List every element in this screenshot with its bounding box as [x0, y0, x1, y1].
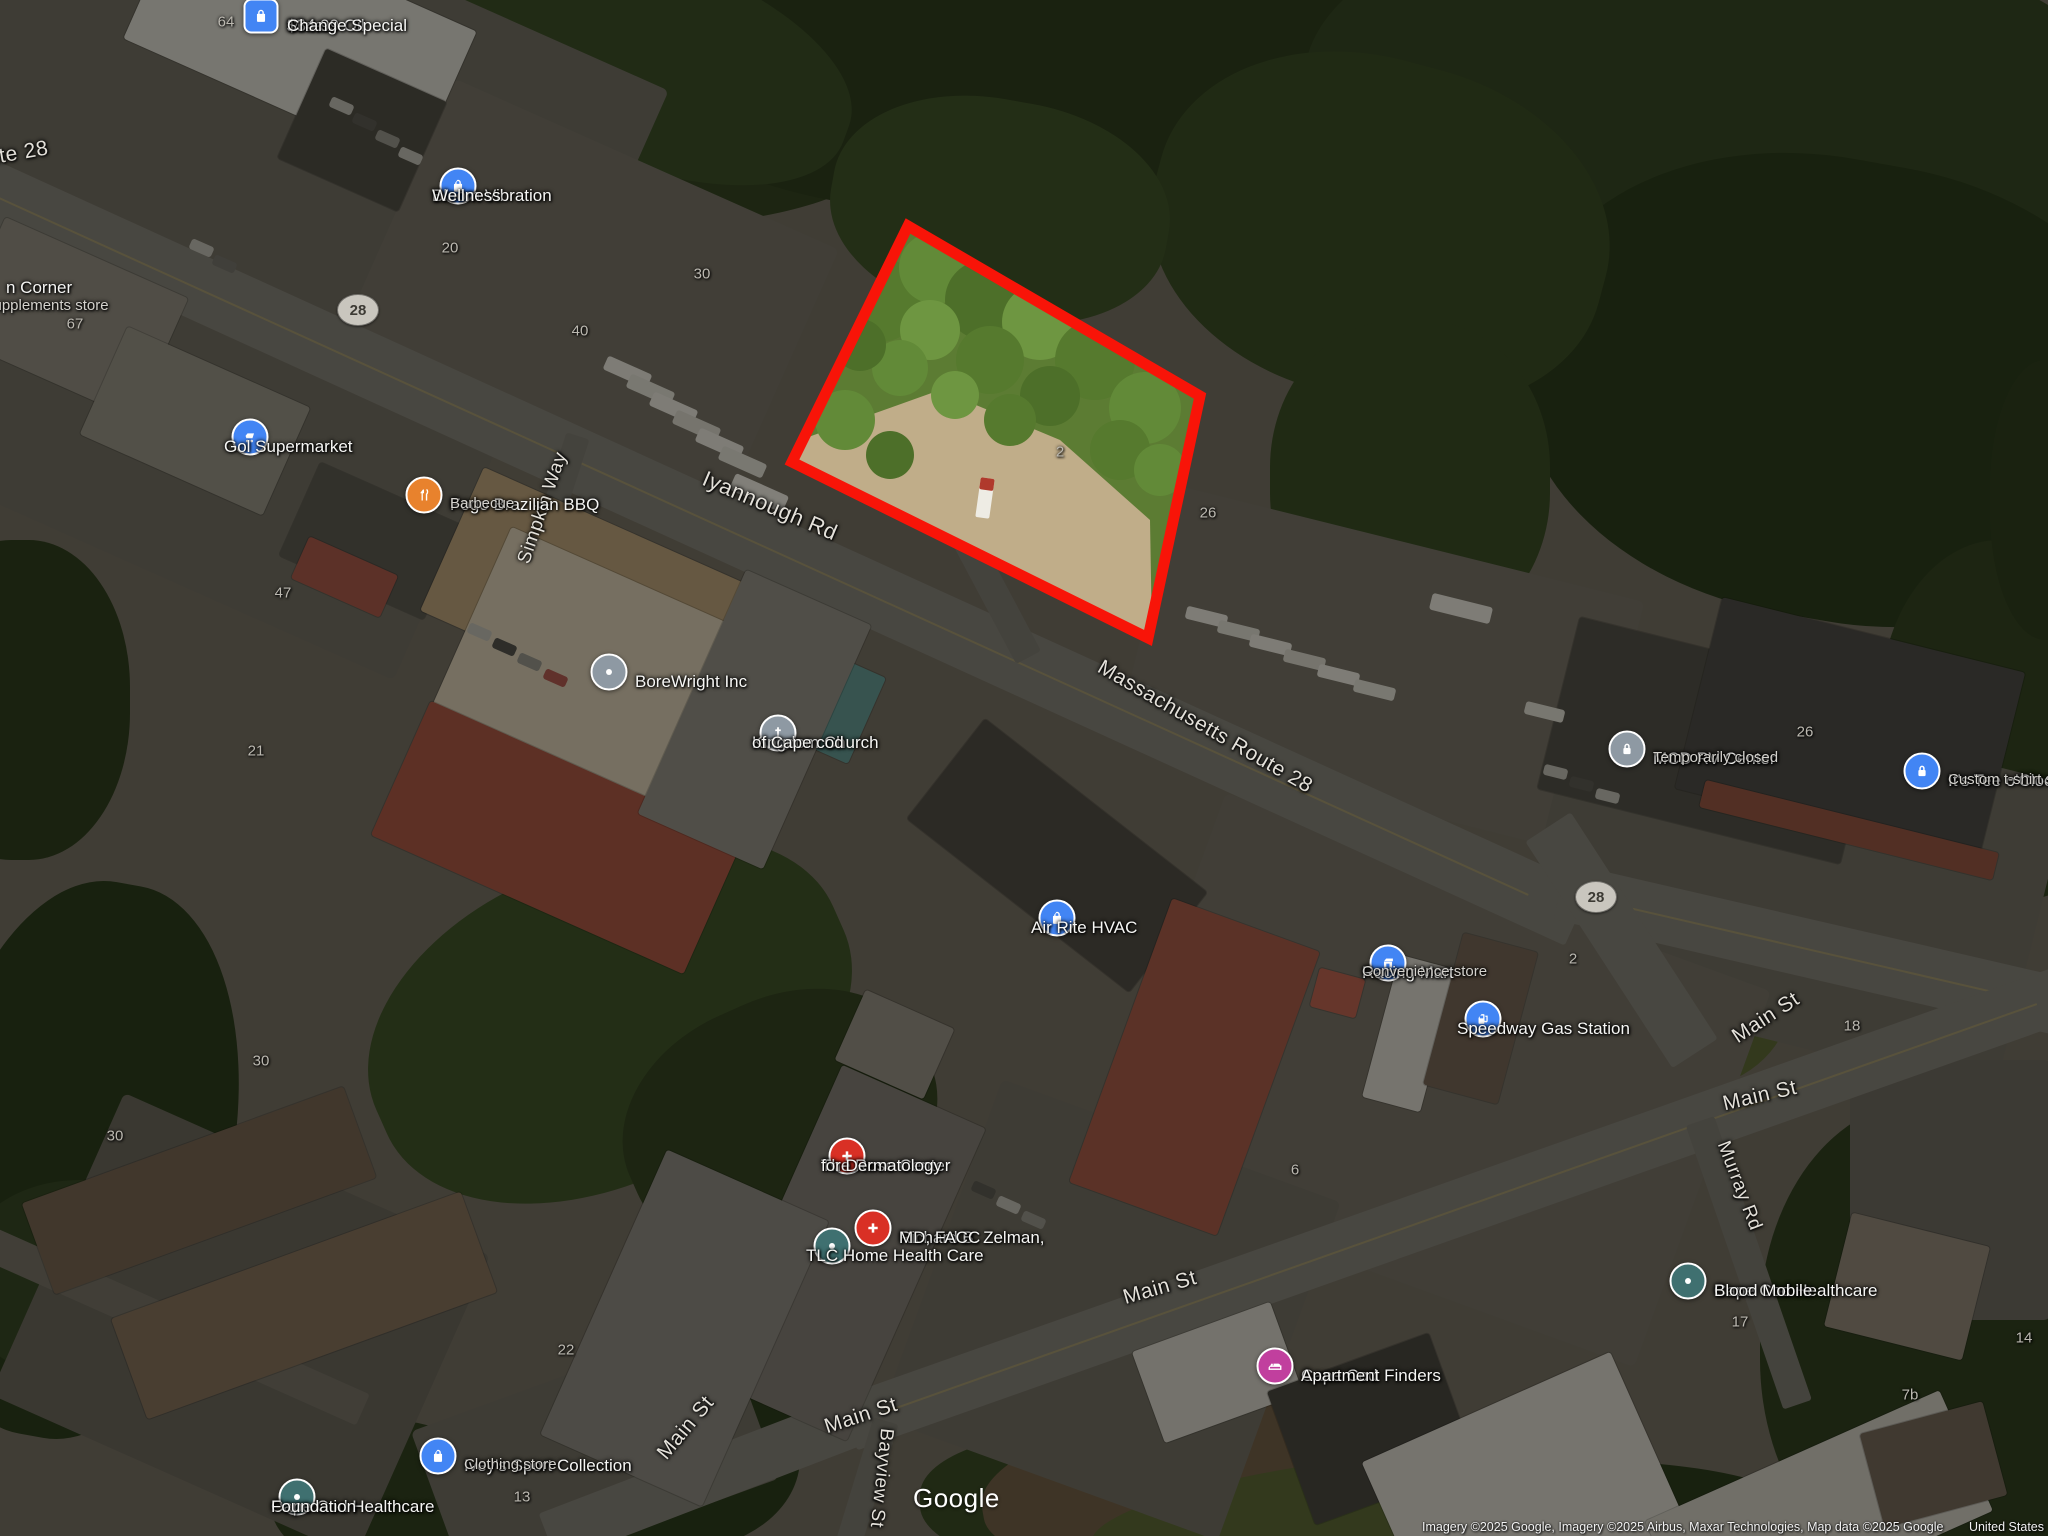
lock-icon[interactable]	[1609, 731, 1646, 768]
medical-icon[interactable]	[855, 1210, 892, 1247]
poi-name-line: Speedway Gas Station	[1457, 1019, 1630, 1038]
poi-name-line: Blood Mobile	[1714, 1281, 1812, 1300]
poi-name-line: BoreWright Inc	[635, 672, 747, 691]
poi-name-line: Wellness	[432, 186, 501, 205]
attribution-region: United States	[1969, 1520, 2044, 1534]
poi-name-line: MD, FACC	[899, 1228, 980, 1247]
poi-sub-line: Custom t-shirt store	[1948, 771, 2048, 789]
map-canvas[interactable]: Route 28Iyannough RdMassachusetts Route …	[0, 0, 2048, 1536]
poi-sub-line: Temporarily closed	[1653, 749, 1778, 767]
poi-name-line: Apartment Finders	[1301, 1366, 1441, 1385]
restaurant-icon[interactable]	[406, 477, 443, 514]
bag-icon[interactable]	[244, 0, 279, 34]
poi-sub-line: Barbecue	[450, 495, 514, 513]
parcel-interior	[792, 226, 1200, 638]
dot-icon[interactable]	[591, 654, 628, 691]
selected-parcel-overlay	[0, 0, 2048, 1536]
poi-name-line: Foundation	[271, 1497, 356, 1516]
lock-icon[interactable]	[1904, 753, 1941, 790]
google-logo[interactable]: Google	[913, 1483, 1000, 1514]
poi-name-line: for Dermatology	[821, 1156, 942, 1175]
poi-name-line: of Cape cod	[752, 733, 844, 752]
poi-name-line: TLC Home Health Care	[806, 1246, 984, 1265]
bag-icon[interactable]	[420, 1438, 457, 1475]
attribution-text: Imagery ©2025 Google, Imagery ©2025 Airb…	[1422, 1520, 1943, 1534]
poi-sub-line: Clothing store	[464, 1456, 557, 1474]
dot-icon[interactable]	[1670, 1263, 1707, 1300]
bed-icon[interactable]	[1257, 1348, 1294, 1385]
poi-sub-line: Convenience store	[1362, 963, 1487, 981]
map-attribution: Imagery ©2025 Google, Imagery ©2025 Airb…	[1422, 1520, 2044, 1534]
poi-name-line: Air Rite HVAC	[1031, 918, 1137, 937]
poi-name-line: Change Special	[287, 16, 407, 35]
poi-name-line: Gol Supermarket	[224, 437, 353, 456]
